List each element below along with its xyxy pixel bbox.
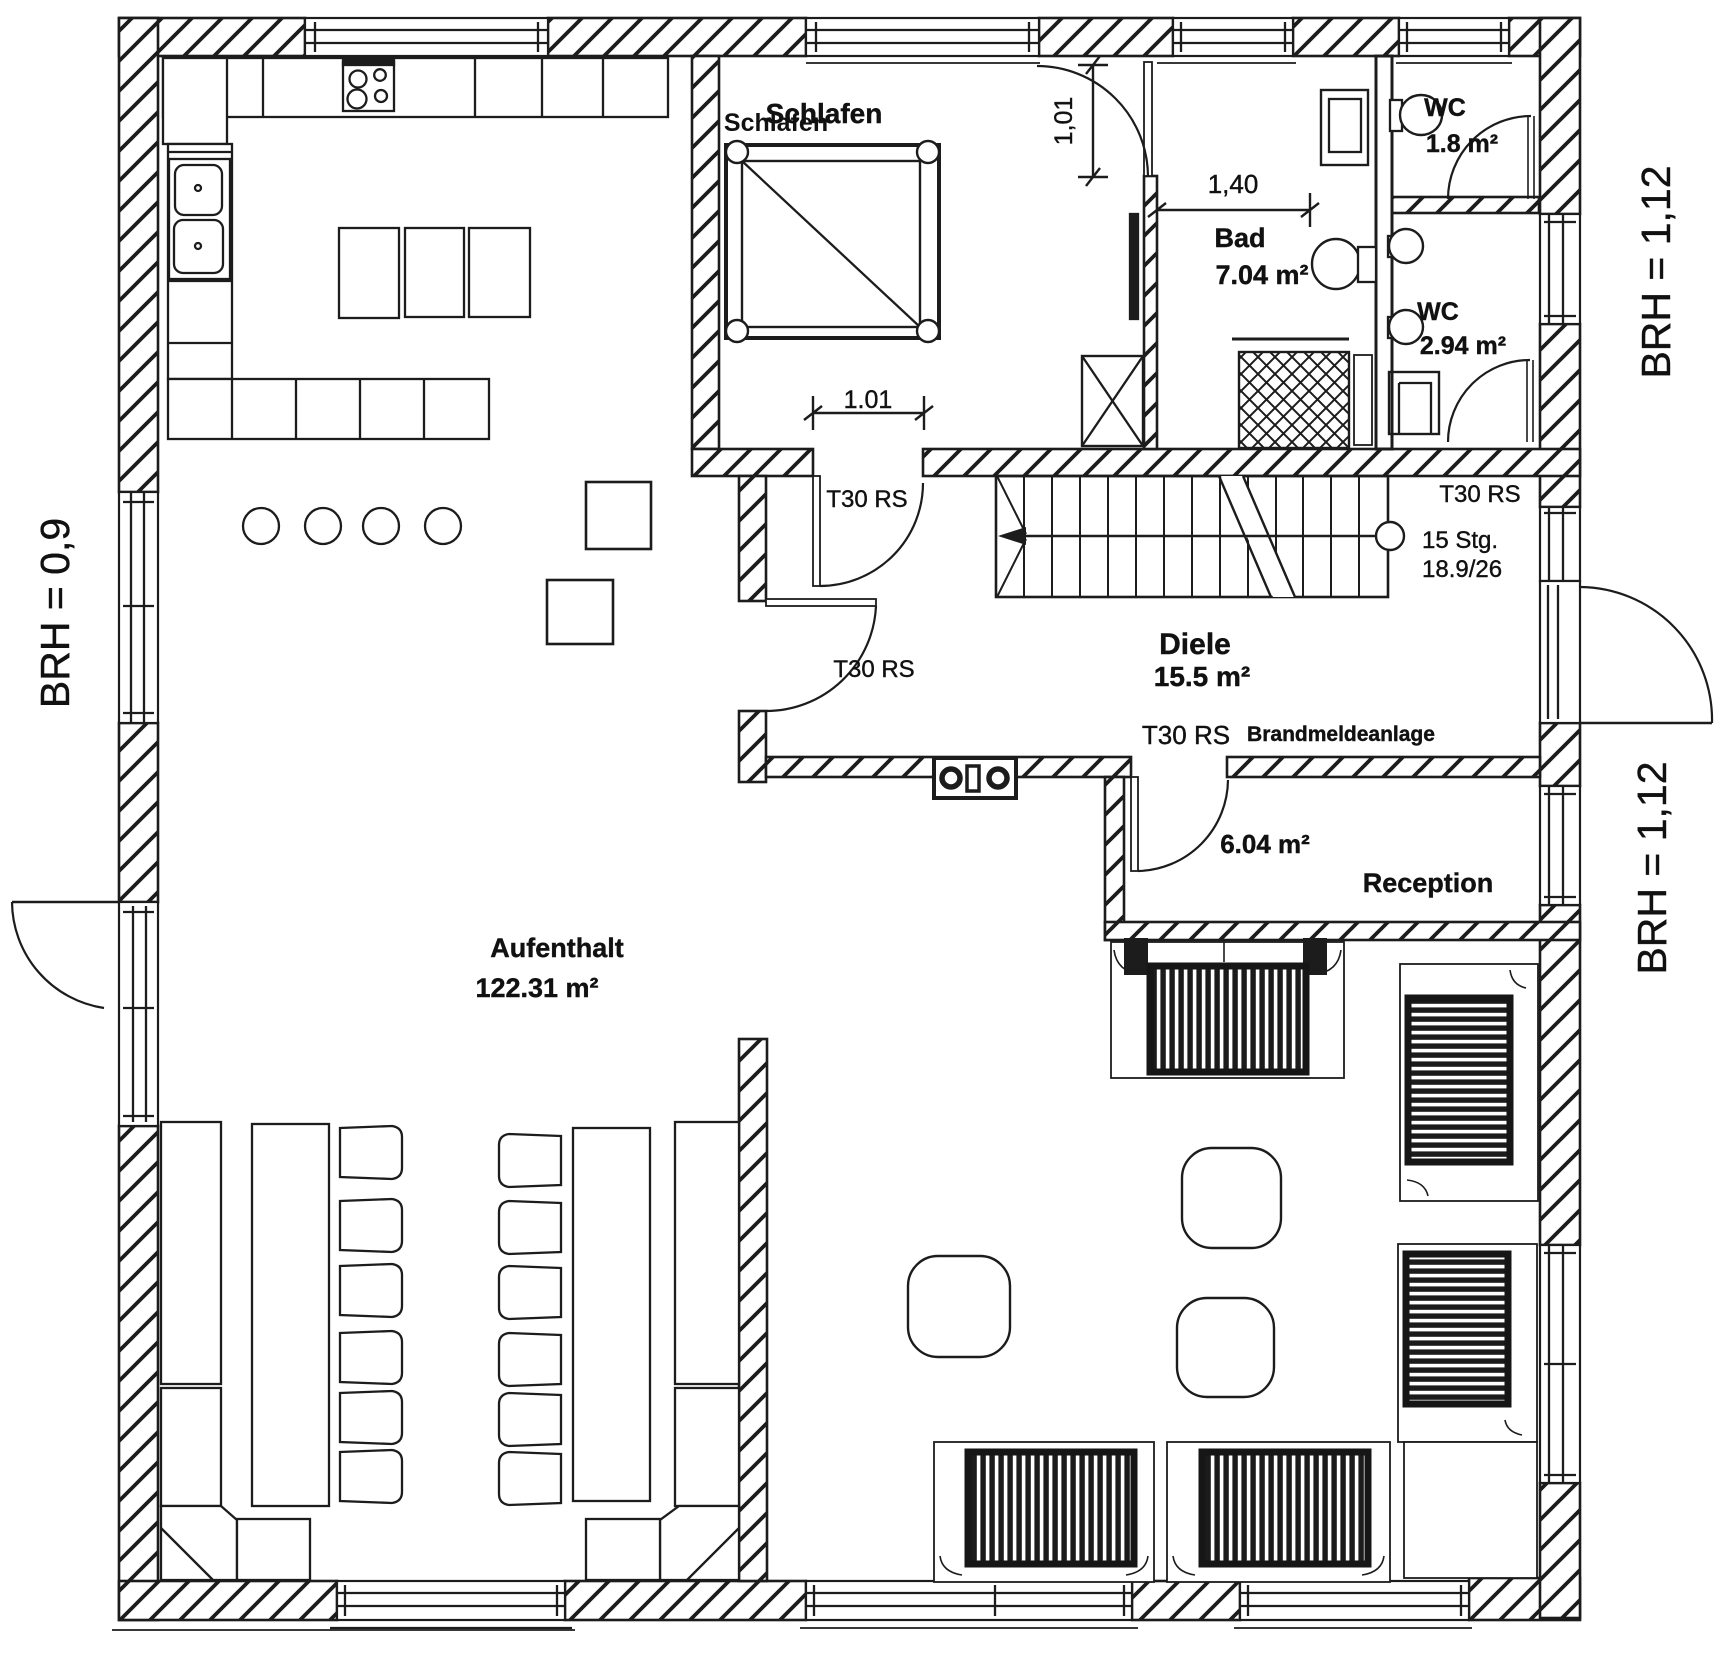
svg-text:1,40: 1,40: [1208, 169, 1259, 199]
svg-text:Aufenthalt: Aufenthalt: [490, 933, 623, 963]
svg-text:2.94 m²: 2.94 m²: [1420, 332, 1506, 360]
svg-text:18.9/26: 18.9/26: [1422, 556, 1502, 583]
svg-text:1.8 m²: 1.8 m²: [1426, 130, 1498, 158]
svg-text:WC: WC: [1417, 298, 1459, 326]
svg-text:Schlafen: Schlafen: [766, 98, 883, 129]
svg-text:BRH = 1,12: BRH = 1,12: [1633, 165, 1679, 378]
svg-text:T30 RS: T30 RS: [1142, 720, 1230, 750]
svg-text:Bad: Bad: [1214, 223, 1265, 253]
svg-text:Diele: Diele: [1159, 628, 1231, 661]
svg-text:BRH = 0,9: BRH = 0,9: [32, 518, 78, 708]
svg-text:Reception: Reception: [1363, 868, 1494, 898]
svg-text:T30 RS: T30 RS: [833, 656, 914, 683]
svg-text:1.01: 1.01: [844, 386, 893, 414]
svg-text:122.31 m²: 122.31 m²: [475, 973, 598, 1003]
svg-text:BRH = 1,12: BRH = 1,12: [1629, 761, 1675, 974]
svg-text:T30 RS: T30 RS: [1439, 481, 1520, 508]
svg-text:7.04 m²: 7.04 m²: [1215, 260, 1308, 290]
svg-text:6.04 m²: 6.04 m²: [1220, 829, 1310, 859]
svg-text:T30 RS: T30 RS: [826, 486, 907, 513]
svg-text:15.5 m²: 15.5 m²: [1154, 661, 1251, 692]
svg-text:1,01: 1,01: [1050, 97, 1078, 146]
svg-text:Brandmeldeanlage: Brandmeldeanlage: [1247, 723, 1435, 746]
svg-text:15 Stg.: 15 Stg.: [1422, 527, 1498, 554]
svg-text:WC: WC: [1424, 94, 1466, 122]
